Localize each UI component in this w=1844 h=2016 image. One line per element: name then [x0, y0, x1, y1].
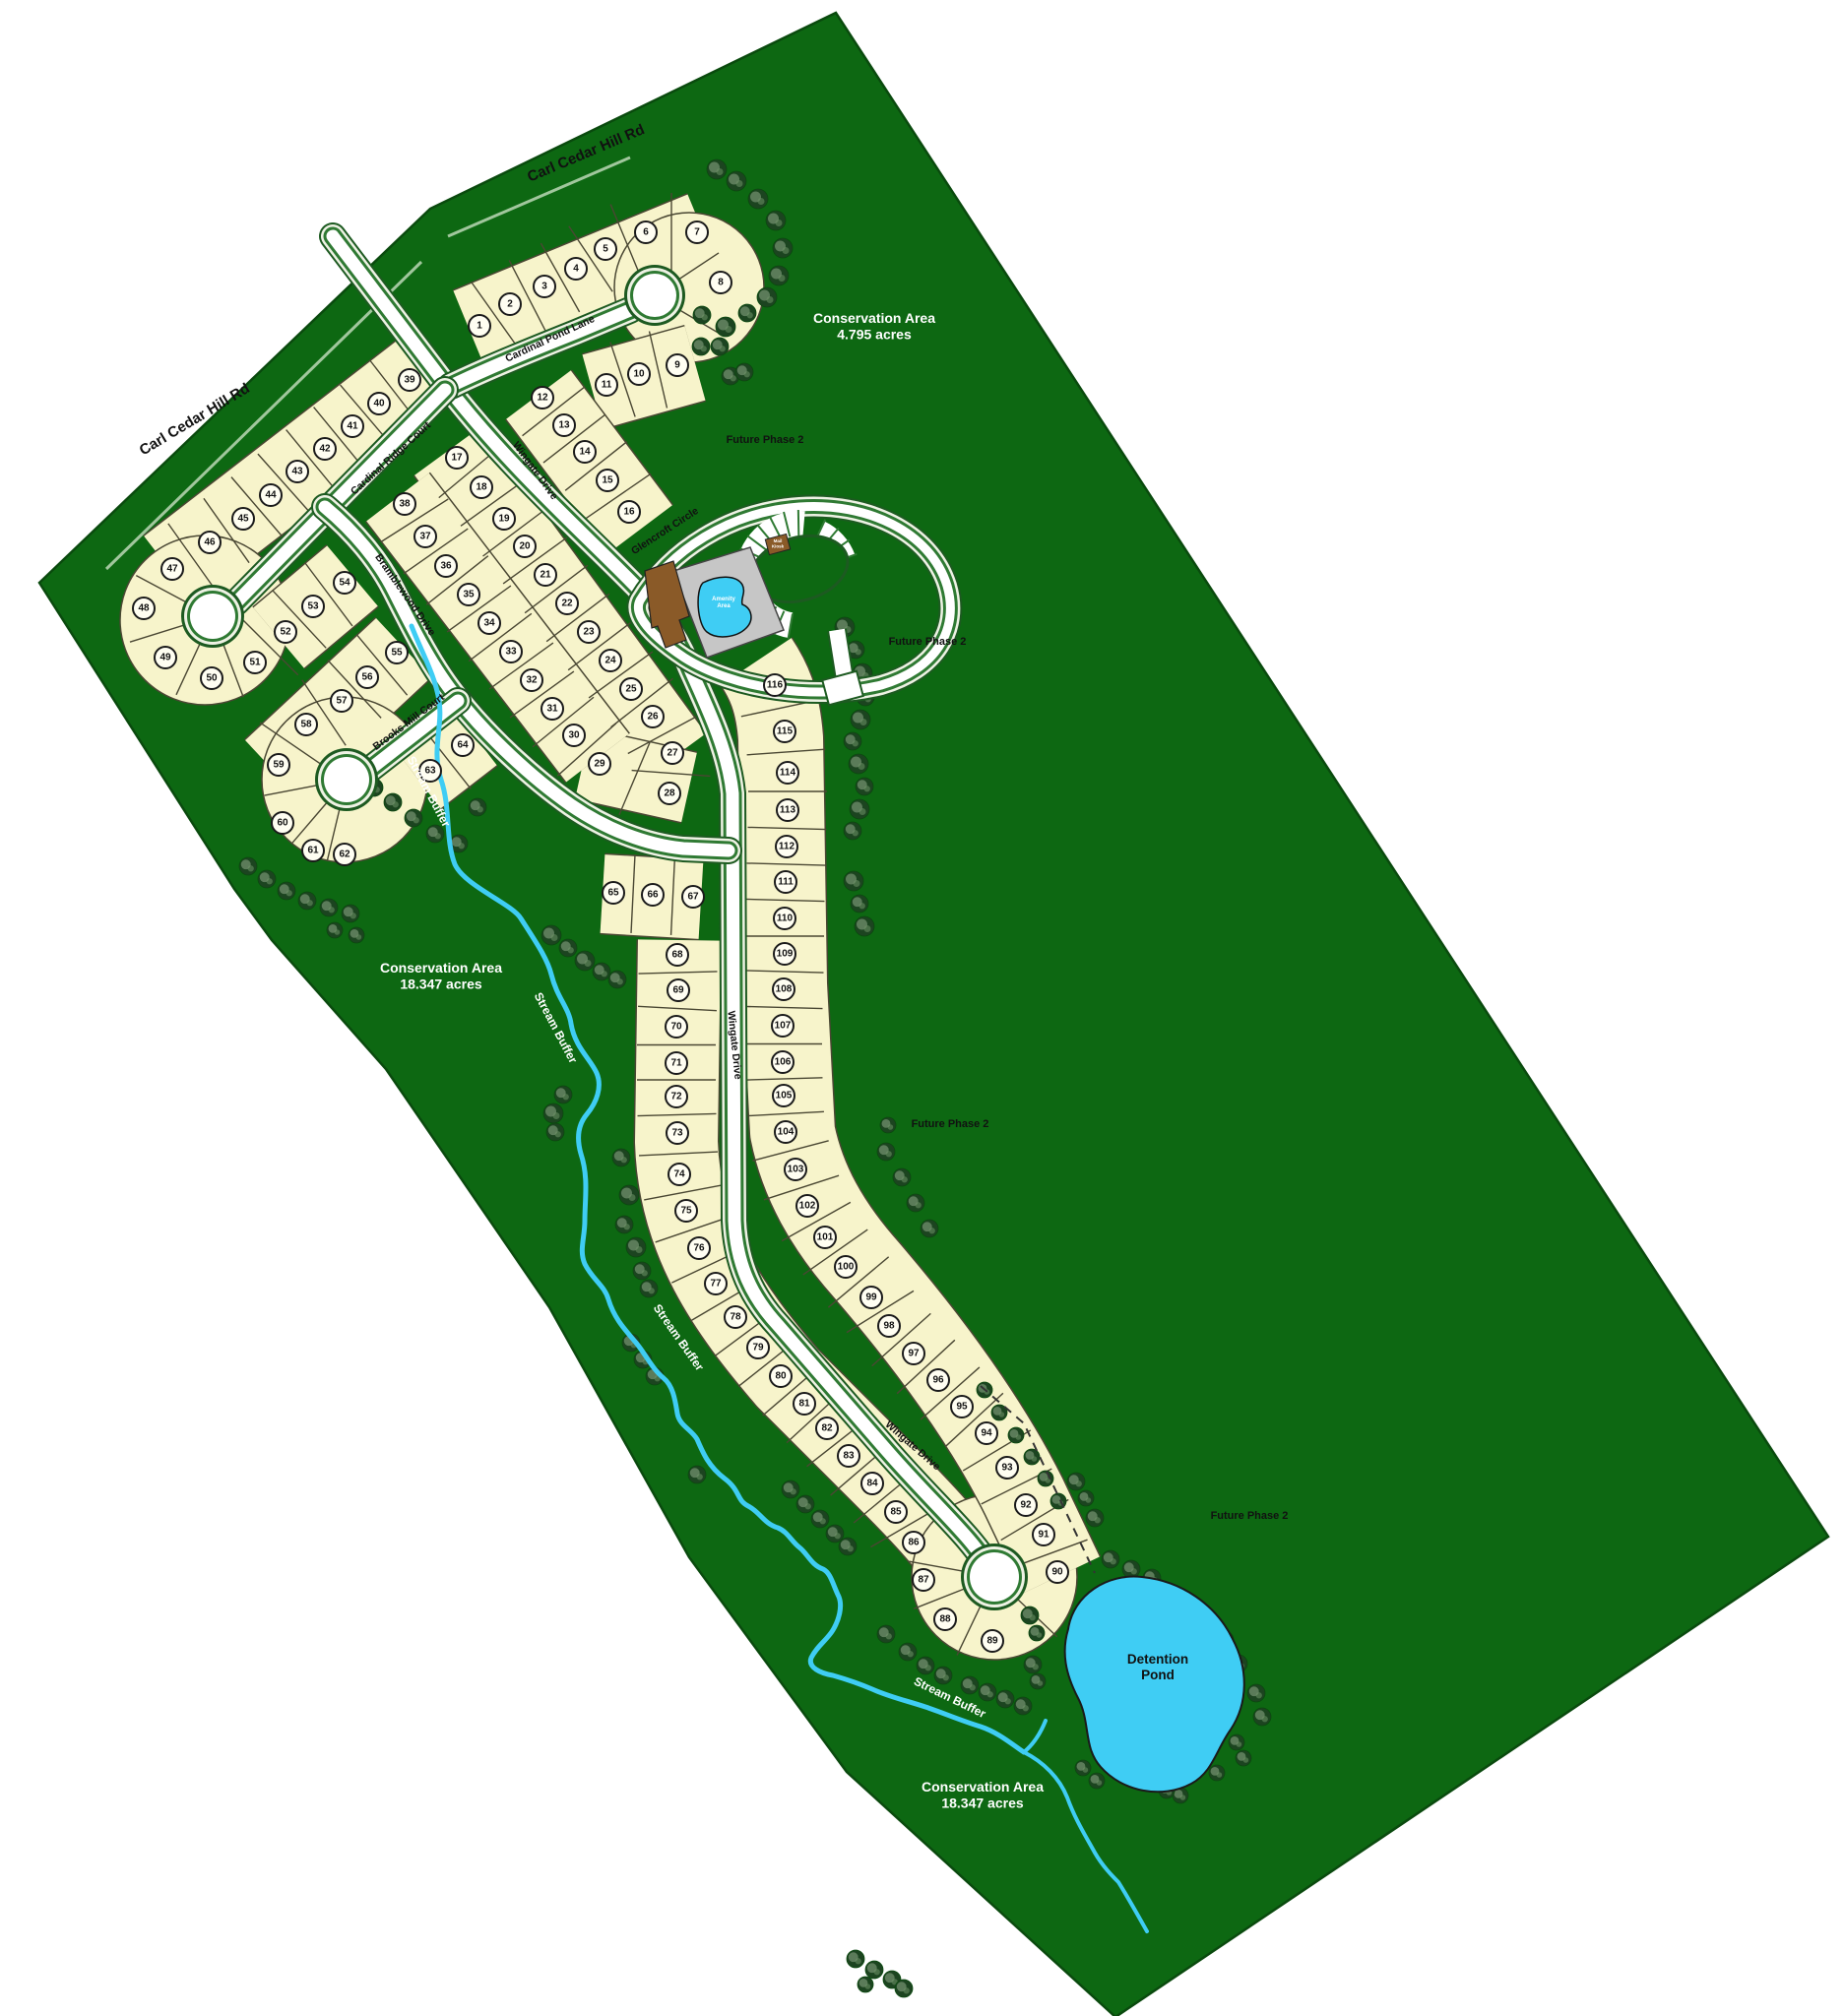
- tree-highlight: [717, 168, 724, 175]
- lot-number: 71: [670, 1058, 682, 1069]
- tree-highlight: [1038, 1680, 1044, 1686]
- tree-highlight: [1016, 1434, 1022, 1440]
- lot-number: 79: [752, 1343, 764, 1354]
- lot-number: 80: [775, 1371, 787, 1382]
- tree-highlight: [267, 878, 273, 884]
- tree-highlight: [864, 786, 870, 791]
- tree-highlight: [1111, 1558, 1116, 1564]
- tree-highlight: [248, 865, 254, 871]
- area-label-line: Future Phase 2: [889, 636, 967, 648]
- tree-highlight: [848, 1545, 854, 1551]
- lot-number: 64: [457, 740, 469, 751]
- tree-highlight: [335, 929, 341, 935]
- tree-highlight: [853, 740, 858, 746]
- tree-highlight: [776, 220, 783, 226]
- tree-highlight: [701, 346, 707, 351]
- lot-number: 115: [777, 726, 794, 737]
- lot-number: 106: [775, 1057, 792, 1068]
- cul-de-sac-bulb: [324, 757, 369, 802]
- tree-highlight: [1243, 1757, 1249, 1763]
- lot-number: 69: [672, 985, 684, 996]
- lot-number: 91: [1038, 1530, 1049, 1541]
- tree-highlight: [629, 1194, 636, 1201]
- tree-highlight: [1256, 1692, 1262, 1698]
- lot-number: 58: [300, 720, 312, 730]
- tree-highlight: [1083, 1767, 1089, 1773]
- lot-number: 110: [777, 913, 794, 924]
- tree-highlight: [874, 1969, 880, 1975]
- lot-number: 65: [607, 888, 619, 899]
- lot-number: 28: [664, 788, 675, 799]
- tree-highlight: [820, 1518, 826, 1524]
- lot-number: 55: [391, 648, 403, 659]
- tree-highlight: [1037, 1632, 1043, 1638]
- area-label-line: Pond: [1141, 1668, 1175, 1682]
- lot-number: 66: [647, 890, 659, 901]
- subdivision-site-plan: 1234567891011121314151617181920212223242…: [0, 0, 1844, 2016]
- site-plan-svg: 1234567891011121314151617181920212223242…: [0, 0, 1844, 2016]
- tree-highlight: [999, 1412, 1005, 1417]
- lot-number: 86: [908, 1538, 920, 1548]
- lot-number: 95: [956, 1402, 968, 1413]
- tree-highlight: [859, 903, 865, 909]
- tree-highlight: [720, 346, 726, 351]
- lot-number: 108: [776, 984, 793, 995]
- tree-highlight: [553, 1112, 560, 1119]
- lot-number: 85: [890, 1507, 902, 1518]
- tree-highlight: [1032, 1456, 1038, 1462]
- lot-number: 76: [693, 1243, 705, 1254]
- lot-number: 73: [671, 1128, 683, 1139]
- area-label-line: Mail: [774, 538, 783, 543]
- area-label-line: Conservation Area: [380, 960, 502, 976]
- lot-number: 19: [498, 514, 510, 525]
- lot-number: 72: [670, 1092, 682, 1102]
- tree-highlight: [747, 312, 753, 318]
- lot-number: 8: [718, 278, 724, 288]
- lot-number: 46: [204, 537, 216, 548]
- lot-number: 56: [361, 672, 373, 683]
- tree-highlight: [413, 817, 419, 823]
- lot-number: 103: [788, 1165, 804, 1175]
- tree-highlight: [726, 326, 732, 333]
- area-label-line: 4.795 acres: [837, 327, 912, 343]
- lot-number: 41: [347, 421, 358, 432]
- tree-highlight: [1023, 1705, 1029, 1711]
- area-label-future-phase-2-south: Future Phase 2: [1211, 1510, 1289, 1522]
- tree-highlight: [1180, 1795, 1186, 1800]
- lot-number: 14: [579, 447, 591, 458]
- lot-number: 83: [843, 1451, 855, 1462]
- tree-highlight: [1097, 1780, 1103, 1786]
- lot-number: 89: [986, 1636, 998, 1647]
- lot-number: 12: [537, 393, 548, 404]
- lot-number: 74: [673, 1169, 685, 1180]
- area-label-future-phase-2-upper-east: Future Phase 2: [889, 636, 967, 648]
- lot-number: 20: [519, 541, 531, 552]
- tree-highlight: [856, 1958, 861, 1964]
- lot-number: 113: [780, 805, 796, 816]
- lot-number: 16: [623, 507, 635, 518]
- tree-highlight: [459, 843, 465, 849]
- tree-highlight: [602, 971, 607, 976]
- lot-number: 11: [602, 380, 612, 391]
- tree-highlight: [835, 1533, 841, 1539]
- tree-highlight: [987, 1691, 993, 1697]
- lot-number: 15: [602, 475, 613, 486]
- tree-highlight: [805, 1503, 811, 1509]
- lot-number: 53: [307, 601, 319, 612]
- lot-number: 42: [319, 444, 331, 455]
- tree-highlight: [393, 801, 399, 807]
- cul-de-sac-bulb: [633, 274, 676, 317]
- tree-highlight: [925, 1665, 931, 1670]
- tree-highlight: [791, 1488, 796, 1494]
- tree-highlight: [779, 275, 786, 282]
- lot-number: 49: [159, 653, 171, 663]
- lot-number: 3: [541, 282, 547, 292]
- tree-highlight: [1237, 1741, 1242, 1747]
- tree-highlight: [551, 934, 558, 941]
- tree-highlight: [617, 978, 623, 984]
- area-label-future-phase-2-mid: Future Phase 2: [912, 1118, 989, 1130]
- tree-highlight: [736, 180, 743, 187]
- lot-number: 78: [730, 1312, 741, 1323]
- lot-number: 1: [477, 321, 482, 332]
- lot-number: 70: [670, 1022, 682, 1033]
- lot-number: 21: [540, 570, 551, 581]
- lot-number: 2: [507, 299, 513, 310]
- tree-highlight: [865, 1984, 871, 1989]
- lot-number: 45: [237, 514, 249, 525]
- tree-highlight: [853, 830, 858, 836]
- tree-highlight: [856, 649, 861, 655]
- lot-number: 67: [687, 892, 699, 903]
- lot-number: 40: [373, 399, 385, 409]
- tree-highlight: [1076, 1480, 1082, 1486]
- lot-number: 116: [767, 680, 784, 691]
- lot-number: 34: [483, 618, 495, 629]
- tree-highlight: [864, 925, 871, 932]
- tree-highlight: [1262, 1716, 1268, 1722]
- tree-highlight: [860, 719, 867, 725]
- tree-highlight: [585, 960, 592, 967]
- lot-number: 97: [908, 1349, 920, 1359]
- lot-number: 27: [667, 748, 678, 759]
- lot-number: 107: [775, 1021, 792, 1032]
- lot-number: 94: [981, 1428, 992, 1439]
- lot-number: 98: [883, 1321, 895, 1332]
- tree-highlight: [697, 1474, 703, 1480]
- lot-number: 4: [573, 264, 579, 275]
- lot-number: 92: [1020, 1500, 1032, 1511]
- tree-highlight: [731, 375, 736, 381]
- lot-number: 7: [694, 227, 700, 238]
- area-label-line: Kiosk: [772, 543, 785, 548]
- lot-number: 24: [604, 656, 616, 666]
- lot-number: 51: [249, 658, 261, 668]
- lot-number: 112: [779, 842, 795, 852]
- tree-highlight: [854, 880, 860, 887]
- tree-highlight: [642, 1270, 648, 1276]
- area-label-line: 18.347 acres: [400, 976, 482, 992]
- tree-highlight: [767, 296, 774, 303]
- area-label-line: Future Phase 2: [727, 434, 804, 446]
- lot-number: 84: [866, 1479, 878, 1489]
- tree-highlight: [649, 1288, 655, 1293]
- tree-highlight: [1033, 1664, 1039, 1669]
- tree-highlight: [624, 1224, 630, 1229]
- tree-highlight: [859, 808, 866, 815]
- tree-highlight: [636, 1246, 643, 1253]
- tree-highlight: [307, 900, 313, 906]
- tree-highlight: [1131, 1568, 1137, 1574]
- tree-highlight: [783, 247, 790, 254]
- lot-number: 50: [206, 673, 218, 684]
- lot-number: 22: [561, 598, 573, 609]
- tree-highlight: [888, 1124, 894, 1130]
- lot-number: 33: [505, 647, 517, 658]
- tree-highlight: [329, 907, 335, 913]
- lot-number: 102: [799, 1201, 816, 1212]
- area-label-line: Future Phase 2: [1211, 1510, 1289, 1522]
- lot-number: 35: [463, 590, 475, 600]
- lot-number: 81: [798, 1399, 810, 1410]
- tree-highlight: [908, 1651, 914, 1657]
- lot-number: 105: [776, 1091, 793, 1102]
- lot-number: 60: [277, 818, 288, 829]
- tree-highlight: [568, 947, 574, 953]
- lot-number: 114: [780, 768, 796, 779]
- lot-number: 82: [821, 1423, 833, 1434]
- tree-highlight: [1086, 1497, 1092, 1503]
- lot-number: 6: [643, 227, 649, 238]
- lot-number: 5: [603, 244, 608, 255]
- area-label-line: Conservation Area: [922, 1779, 1044, 1795]
- tree-highlight: [758, 198, 765, 205]
- tree-highlight: [970, 1684, 976, 1690]
- lot-number: 30: [568, 730, 580, 741]
- lot-number: 62: [339, 850, 350, 860]
- lot-number: 44: [265, 490, 277, 501]
- lot-number: 9: [674, 360, 680, 371]
- lot-number: 59: [273, 760, 285, 771]
- lot-number: 68: [671, 950, 683, 961]
- area-label-future-phase-2-north: Future Phase 2: [727, 434, 804, 446]
- lot-number: 18: [476, 482, 487, 493]
- lot-number: 13: [558, 420, 570, 431]
- lot-number: 90: [1051, 1567, 1063, 1578]
- lot-number: 17: [451, 453, 463, 464]
- lot-number: 29: [594, 759, 605, 770]
- lot-number: 88: [939, 1614, 951, 1625]
- lot-number: 109: [777, 949, 794, 960]
- area-label-line: Future Phase 2: [912, 1118, 989, 1130]
- tree-highlight: [1030, 1614, 1036, 1620]
- tree-highlight: [929, 1228, 935, 1233]
- tree-highlight: [477, 806, 483, 812]
- lot-number: 57: [336, 696, 348, 707]
- lot-number: 104: [778, 1127, 795, 1138]
- lot-number: 48: [138, 603, 150, 614]
- tree-highlight: [1217, 1772, 1223, 1778]
- lot-number: 10: [633, 369, 645, 380]
- lot-number: 101: [817, 1232, 834, 1243]
- tree-highlight: [356, 934, 362, 940]
- area-label-line: Detention: [1127, 1652, 1188, 1667]
- lot-number: 31: [546, 704, 558, 715]
- drive-connector: [837, 630, 845, 679]
- lot-number: 36: [440, 561, 452, 572]
- lot-number: 61: [307, 846, 319, 856]
- lot-number: 52: [280, 627, 291, 638]
- tree-highlight: [886, 1633, 892, 1639]
- lot-number: 47: [166, 564, 178, 575]
- tree-highlight: [943, 1674, 949, 1680]
- cul-de-sac-bulb: [190, 594, 235, 639]
- lot-number: 99: [865, 1292, 877, 1303]
- tree-highlight: [621, 1157, 627, 1163]
- lot-number: 43: [291, 467, 303, 477]
- lot-number: 32: [526, 675, 538, 686]
- area-label-line: Amenity: [712, 597, 735, 602]
- tree-highlight: [744, 371, 750, 377]
- area-label-line: 18.347 acres: [941, 1795, 1024, 1811]
- lot-number: 87: [918, 1575, 929, 1586]
- cul-de-sac-bulb: [970, 1552, 1019, 1602]
- lot-number: 100: [838, 1262, 855, 1273]
- tree-highlight: [902, 1176, 908, 1182]
- lot-number: 54: [339, 578, 350, 589]
- tree-highlight: [1005, 1698, 1011, 1704]
- lot-number: 26: [647, 712, 659, 723]
- lot-number: 77: [710, 1279, 722, 1290]
- tree-highlight: [435, 833, 441, 839]
- lot-number: 38: [399, 499, 411, 510]
- tree-highlight: [563, 1094, 569, 1100]
- tree-highlight: [1095, 1517, 1101, 1523]
- tree-highlight: [350, 913, 356, 918]
- tree-highlight: [858, 763, 865, 770]
- lot-number: 96: [932, 1375, 944, 1386]
- lot-number: 23: [583, 627, 595, 638]
- tree-highlight: [916, 1202, 922, 1208]
- lot-number: 93: [1001, 1463, 1013, 1474]
- lot-number: 25: [625, 684, 637, 695]
- lot-number: 75: [680, 1206, 692, 1217]
- lot-number: 37: [419, 532, 431, 542]
- area-label-line: Area: [717, 603, 731, 609]
- lot-number: 39: [404, 375, 415, 386]
- tree-highlight: [904, 1987, 910, 1993]
- tree-highlight: [555, 1131, 561, 1137]
- tree-highlight: [886, 1151, 892, 1157]
- area-label-line: Conservation Area: [813, 310, 935, 326]
- lot-number: 111: [778, 877, 794, 888]
- tree-highlight: [702, 314, 708, 320]
- tree-highlight: [286, 890, 292, 896]
